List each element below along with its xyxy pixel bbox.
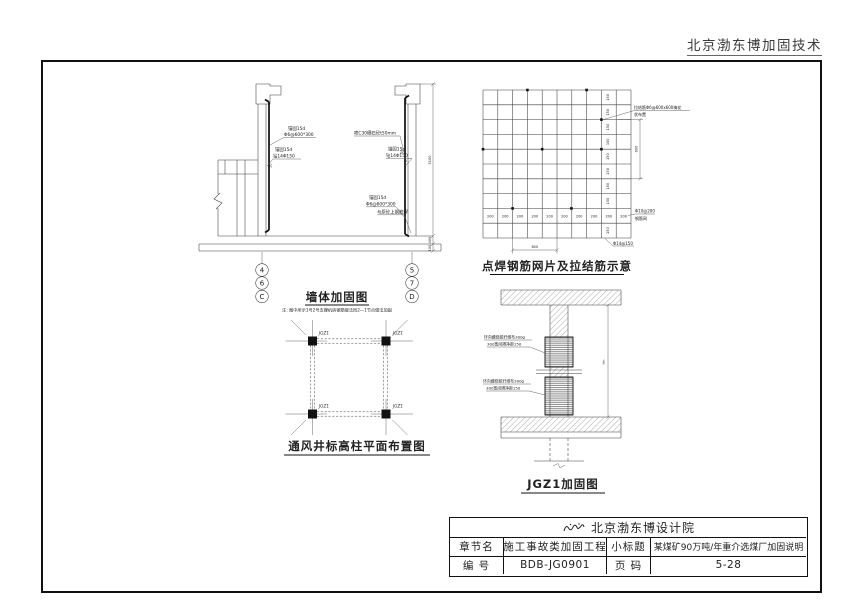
- annotation-text: 钢筋网: [635, 215, 647, 221]
- column-label: JGZ1: [318, 404, 329, 409]
- column-labels: JGZ1 JGZ1 JGZ1 JGZ1: [318, 331, 403, 409]
- dim-200: 200: [576, 214, 583, 218]
- annotation-wrap-upper: 环向缠绕碳纤维布300g 300宽间隔净距150: [484, 335, 545, 354]
- field-label-subtitle: 小标题: [606, 537, 650, 556]
- dim-150: 150: [606, 153, 610, 160]
- column-label: JGZ1: [392, 331, 403, 336]
- column-label: JGZ1: [392, 404, 403, 409]
- dim-150: 150: [606, 183, 610, 190]
- dim-200: 200: [517, 214, 524, 218]
- annotation-text: Φ10@200: [635, 209, 655, 214]
- dim-200: 200: [531, 214, 538, 218]
- grid-bubble-C: C: [260, 293, 265, 301]
- bottom-600-dimension: 600: [511, 238, 559, 254]
- dim-150: 150: [606, 168, 610, 175]
- annotation-text: 锚固15d: [288, 125, 305, 132]
- annotation-corner: Φ14@150: [605, 239, 634, 247]
- wall-diagram-title: 墙体加固图: [306, 290, 369, 304]
- column-jgz1: [308, 337, 317, 346]
- annotation-text: 钻14Φ150: [273, 153, 295, 160]
- mesh-diagram-title: 点焊钢筋网片及拉结筋示意: [482, 259, 632, 273]
- dim-150: 150: [606, 198, 610, 205]
- dim-150: 150: [606, 124, 610, 131]
- dim-50-left: 50: [269, 164, 273, 168]
- field-value-chapter: 施工事故类加固工程: [503, 537, 606, 556]
- annotation-text: 环向缠绕碳纤维布300g: [484, 335, 526, 340]
- annotation-left-anchor-2: 锚固15d 钻14Φ150 50: [267, 146, 301, 168]
- break-symbol: [214, 193, 222, 209]
- wrap-band-lower: [545, 377, 573, 415]
- annotation-text: Φ14@150: [613, 241, 633, 246]
- annotation-text: 锚固15d: [275, 146, 292, 153]
- field-value-number: BDB-JG0901: [503, 556, 606, 575]
- column-jgz1: [382, 410, 391, 419]
- field-label-number: 编 号: [450, 556, 503, 575]
- column-plan-drawing: JGZ1 JGZ1 JGZ1 JGZ1 通风井标高柱平面布置图: [275, 312, 440, 462]
- title-block: 北京渤东博设计院 章节名 施工事故类加固工程 小标题 某煤矿90万吨/年重介选煤…: [449, 517, 808, 577]
- annotation-text: 与原砼上钢筋焊: [377, 209, 408, 216]
- company-header: 北京渤东博加固技术: [548, 34, 822, 54]
- wall-reinforcement-drawing: 5100 400 100 锚固15d Φ6@600*300 锚固15d 钻14Φ…: [185, 72, 455, 312]
- annotation-text: 状布置: [634, 111, 646, 117]
- dim-200: 200: [605, 214, 612, 218]
- dim-150: 150: [606, 138, 610, 145]
- annotation-text: 喷C30细石砼t50mm: [354, 130, 396, 137]
- annotation-text: 拉结筋Φ6@600x600梅花: [634, 104, 681, 110]
- grid-bubble-7: 7: [410, 279, 414, 287]
- column-jgz1: [308, 410, 317, 419]
- title-block-institute-row: 北京渤东博设计院: [450, 518, 807, 537]
- height-dimension: Hn: [602, 303, 610, 418]
- annotation-text: 300宽间隔净距150: [487, 342, 522, 347]
- column-jgz1: [382, 337, 391, 346]
- dim-200: 200: [487, 214, 494, 218]
- annotation-text: 锚固15d: [388, 146, 405, 153]
- institute-name: 北京渤东博设计院: [591, 519, 695, 536]
- grid-bubble-4: 4: [260, 266, 265, 274]
- dim-150: 150: [606, 109, 610, 116]
- annotation-mesh: Φ10@200 钢筋网: [628, 209, 655, 222]
- wrap-band-upper: [545, 337, 573, 367]
- annotation-left-anchor-1: 锚固15d Φ6@600*300: [270, 125, 316, 145]
- dim-600-vertical: 600: [634, 146, 638, 153]
- company-header-text: 北京渤东博加固技术: [687, 38, 822, 56]
- dim-200: 200: [502, 214, 509, 218]
- grid-bubble-6: 6: [260, 279, 265, 287]
- dim-5100: 5100: [428, 156, 432, 165]
- bottom-slab: [501, 417, 621, 438]
- annotation-wrap-lower: 环向缠绕碳纤维布300g 300宽间隔净距150: [483, 379, 545, 396]
- column-plan-title: 通风井标高柱平面布置图: [288, 439, 426, 453]
- jgz1-strengthening-drawing: Hn 环向缠绕碳纤维布300g 300宽间隔净距150 环向缠绕碳纤维布300g…: [462, 282, 667, 497]
- break-symbol: [553, 464, 565, 469]
- dim-200: 200: [561, 214, 568, 218]
- annotation-text: 环向缠绕碳纤维布300g: [483, 379, 525, 384]
- grid-bubble-D: D: [409, 293, 414, 301]
- dim-200: 200: [591, 214, 598, 218]
- left-step-structure: [214, 160, 258, 236]
- dim-400: 400: [428, 237, 432, 244]
- annotation-weld-note: 与原砼上钢筋焊: [377, 209, 411, 234]
- design-institute-logo: [562, 521, 586, 534]
- dim-200: 200: [620, 214, 627, 218]
- dim-height: Hn: [602, 360, 606, 365]
- dim-600-horizontal: 600: [531, 245, 538, 249]
- dim-100: 100: [428, 245, 432, 252]
- top-slab: [501, 290, 621, 305]
- jgz1-diagram-title: JGZ1加固图: [526, 477, 599, 491]
- field-label-page: 页 码: [606, 556, 650, 575]
- title-block-fields: 章节名 施工事故类加固工程 小标题 某煤矿90万吨/年重介选煤厂加固说明 编 号…: [450, 537, 807, 574]
- annotation-text: 钻14Φ150: [386, 152, 408, 159]
- column-below-slab: [534, 438, 584, 468]
- dim-150: 150: [606, 227, 610, 234]
- annotation-text: 锚固15d: [369, 194, 386, 201]
- welded-mesh-drawing: 150 150 150 150 150 150 150 150 150 200 …: [478, 78, 748, 278]
- column-label: JGZ1: [318, 331, 329, 336]
- right-dimension-line: 5100 400 100: [420, 82, 436, 253]
- field-value-subtitle: 某煤矿90万吨/年重介选煤厂加固说明: [650, 537, 806, 556]
- field-value-page: 5-28: [650, 556, 806, 575]
- annotation-text: 300宽间隔净距150: [486, 386, 521, 391]
- axis-lines: [286, 320, 414, 435]
- dim-200: 200: [546, 214, 553, 218]
- floor-slab: [199, 236, 441, 251]
- dim-150: 150: [606, 94, 610, 101]
- field-label-chapter: 章节名: [450, 537, 503, 556]
- grid-bubble-5: 5: [410, 266, 414, 274]
